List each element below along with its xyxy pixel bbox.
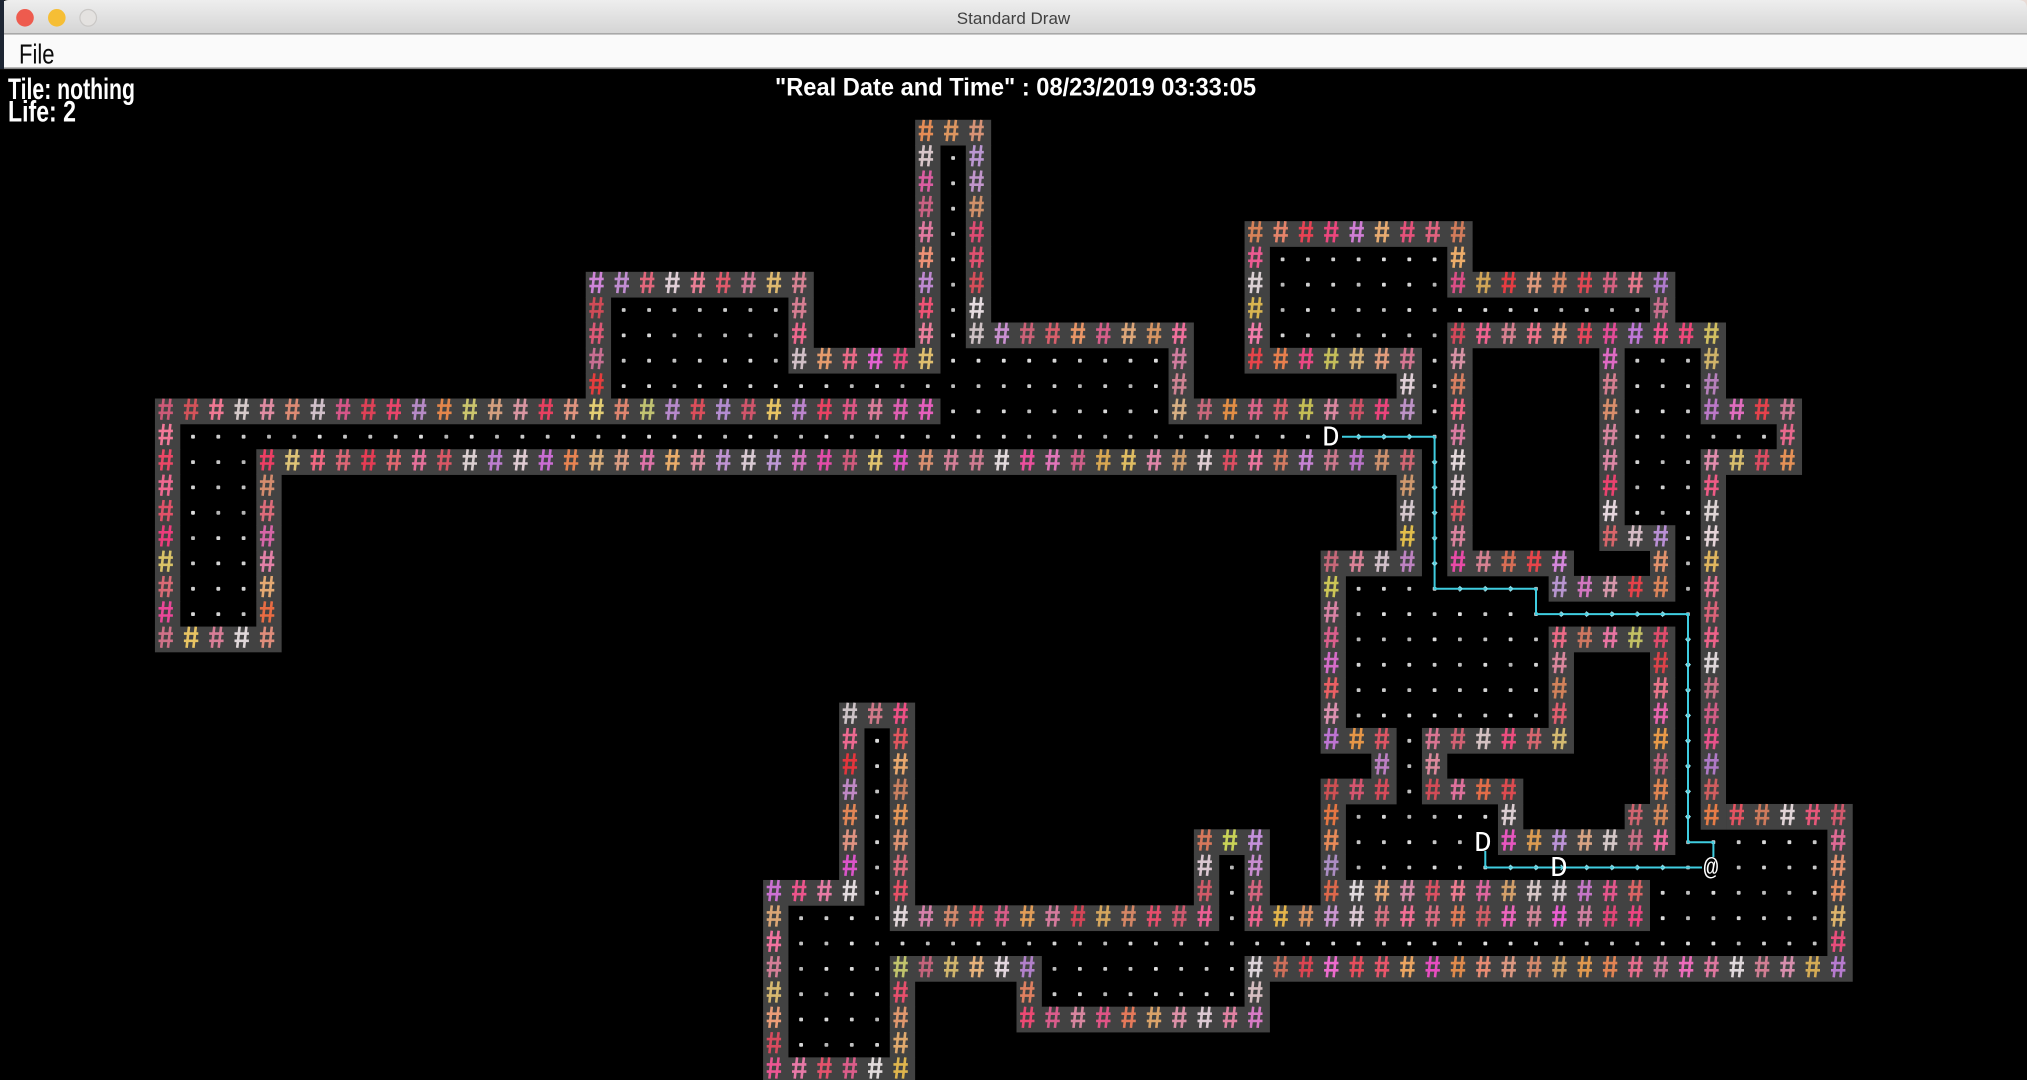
svg-text:Standard Draw: Standard Draw [957, 9, 1071, 28]
svg-text:"Real Date and Time" : 08/23/2: "Real Date and Time" : 08/23/2019 03:33:… [775, 74, 1256, 102]
svg-text:D: D [1474, 827, 1491, 860]
svg-text:D: D [1550, 852, 1567, 885]
svg-text:D: D [1322, 421, 1339, 454]
svg-text:@: @ [1703, 854, 1718, 883]
svg-text:File: File [19, 38, 55, 69]
svg-text:Life: 2: Life: 2 [8, 96, 76, 129]
